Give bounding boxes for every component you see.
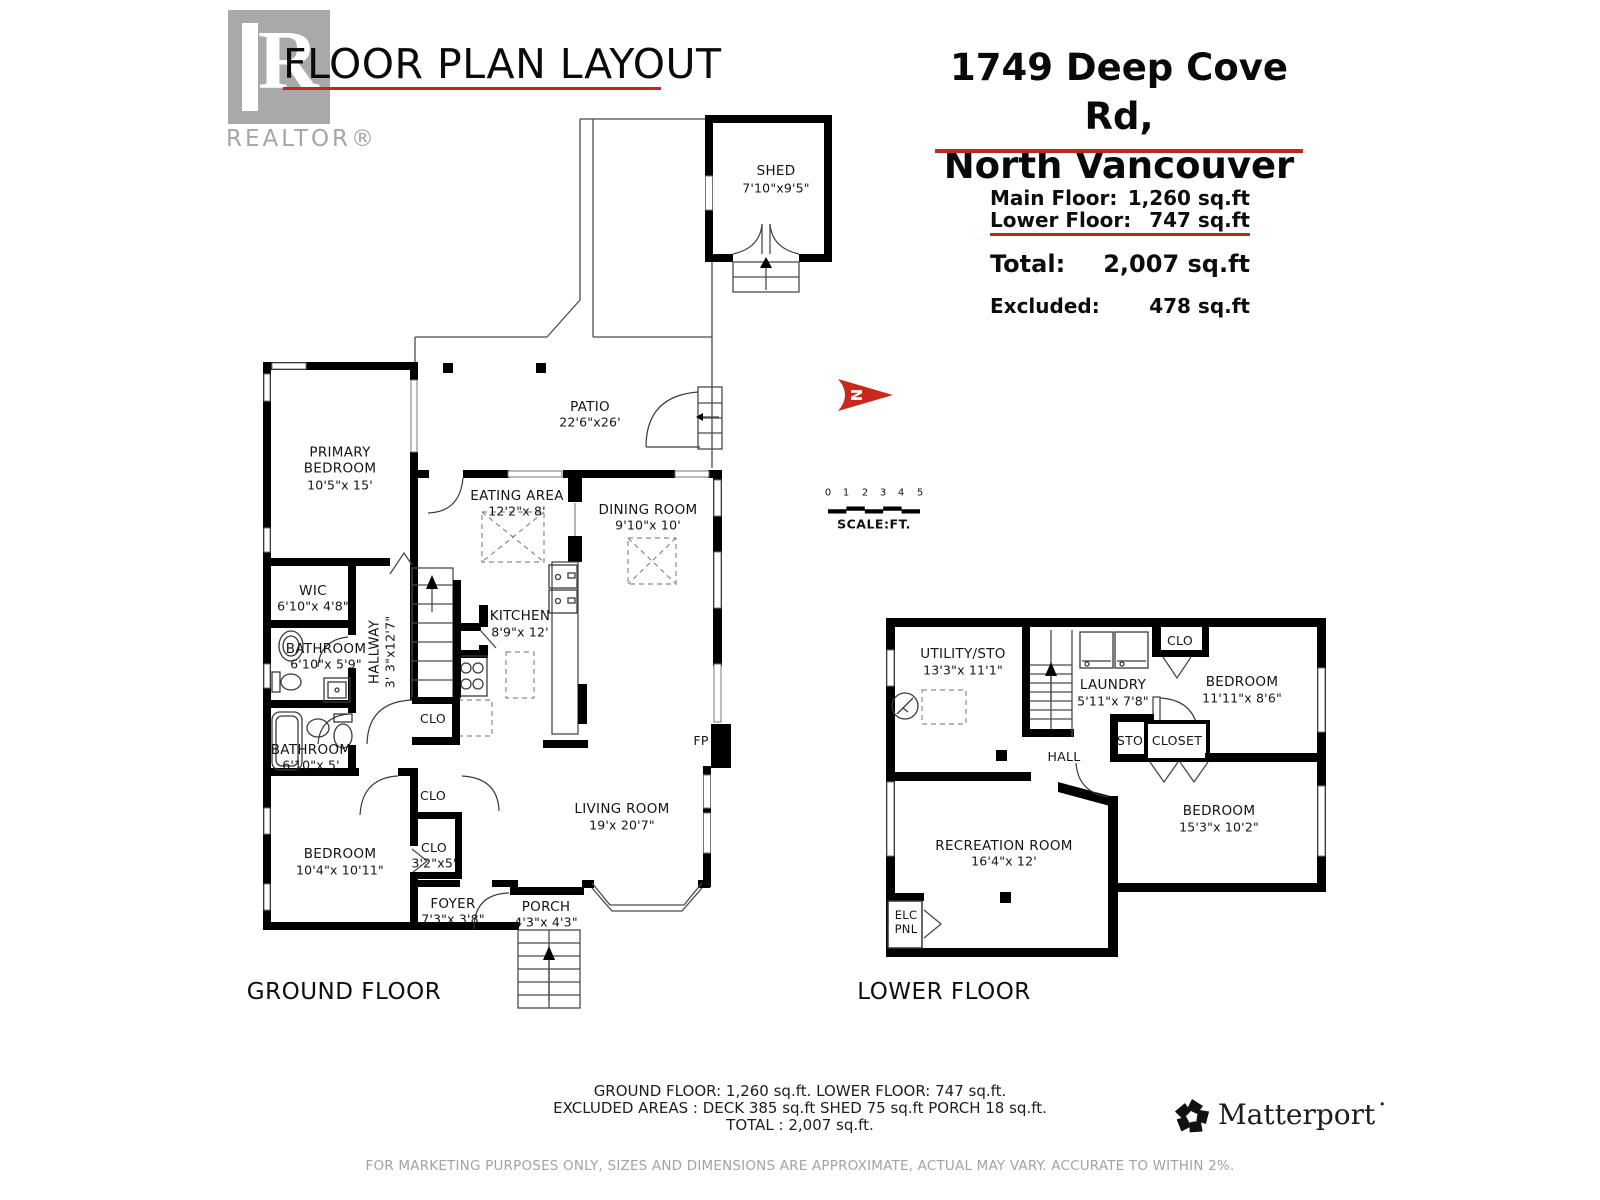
scale-tick-4: 4 [898, 488, 904, 499]
room-label-utility: UTILITY/STO [920, 647, 1005, 663]
address-line1: 1749 Deep Cove Rd, [935, 44, 1303, 142]
stat-total: Total: 2,007 sq.ft [990, 250, 1250, 278]
realtor-logo-bar [242, 23, 258, 111]
matterport-logo-text: Matterport˙ [1218, 1098, 1389, 1131]
room-dims-primary-bedroom: 10'5"x 15' [307, 478, 373, 493]
room-label-living-room: LIVING ROOM [574, 802, 669, 818]
north-arrow-icon: N [838, 379, 893, 411]
room-dims-living-room: 19'x 20'7" [589, 818, 655, 833]
room-label-fireplace: FP [693, 734, 708, 748]
room-dims-foyer: 7'3"x 3'8" [421, 912, 485, 927]
room-dims-bedroom2-lower: 15'3"x 10'2" [1179, 820, 1259, 835]
room-label-dining-room: DINING ROOM [599, 503, 698, 519]
room-label-recreation: RECREATION ROOM [935, 839, 1072, 855]
page-title: FLOOR PLAN LAYOUT [283, 40, 722, 88]
svg-text:N: N [847, 389, 865, 402]
room-label-foyer: FOYER [430, 897, 475, 913]
address-underline [935, 149, 1303, 153]
stat-excluded: Excluded: 478 sq.ft [990, 294, 1250, 318]
room-label-primary-bedroom: PRIMARY BEDROOM [280, 445, 400, 476]
room-dims-wic: 6'10"x 4'8" [277, 599, 349, 614]
room-label-closet: CLOSET [1152, 734, 1202, 748]
title-underline [283, 87, 661, 90]
realtor-logo-text: REALTOR® [226, 126, 377, 152]
stats-divider [990, 233, 1250, 236]
stat-main-floor-label: Main Floor: [990, 186, 1117, 210]
lower-floor-title: LOWER FLOOR [857, 979, 1031, 1005]
room-dims-bedroom: 10'4"x 10'11" [296, 863, 384, 878]
property-address: 1749 Deep Cove Rd, North Vancouver [935, 44, 1303, 190]
room-label-clo1: CLO [420, 789, 446, 803]
scale-tick-1: 1 [843, 488, 849, 499]
room-label-bedroom1-lower: BEDROOM [1206, 675, 1279, 691]
stat-total-label: Total: [990, 250, 1065, 278]
room-dims-shed: 7'10"x9'5" [742, 181, 810, 196]
room-dims-porch: 4'3"x 4'3" [514, 915, 578, 930]
stat-lower-floor: Lower Floor: 747 sq.ft [990, 208, 1250, 232]
room-label-clo2: CLO [421, 841, 447, 855]
stat-total-value: 2,007 sq.ft [1103, 250, 1250, 278]
scale-tick-2: 2 [862, 488, 868, 499]
room-dims-recreation: 16'4"x 12' [971, 854, 1037, 869]
room-label-sto: STO [1117, 734, 1143, 748]
room-label-clo-hall: CLO [420, 712, 446, 726]
room-dims-bathroom2: 6'10"x 5' [282, 758, 340, 773]
room-dims-laundry: 5'11"x 7'8" [1077, 694, 1149, 709]
stat-lower-floor-value: 747 sq.ft [1149, 208, 1250, 232]
stat-main-floor-value: 1,260 sq.ft [1128, 186, 1250, 210]
room-label-eating-area: EATING AREA [470, 489, 563, 505]
room-dims-kitchen: 8'9"x 12' [491, 625, 549, 640]
scale-label: SCALE:FT. [837, 517, 911, 532]
footer-disclaimer: FOR MARKETING PURPOSES ONLY, SIZES AND D… [0, 1158, 1600, 1174]
room-label-bathroom1: BATHROOM [286, 642, 367, 658]
floorplan-page: N R REALTOR® FLOOR PLAN LAYOUT [0, 0, 1600, 1200]
stat-excluded-label: Excluded: [990, 294, 1100, 318]
stat-main-floor: Main Floor: 1,260 sq.ft [990, 186, 1250, 210]
scale-tick-5: 5 [917, 488, 923, 499]
room-label-bedroom2-lower: BEDROOM [1183, 804, 1256, 820]
room-dims-eating-area: 12'2"x 8' [488, 504, 546, 519]
room-dims-utility: 13'3"x 11'1" [923, 663, 1003, 678]
room-label-hallway: HALLWAY 3' 3"x12'7" [367, 616, 398, 689]
room-label-kitchen: KITCHEN [490, 609, 551, 625]
room-dims-bathroom1: 6'10"x 5'9" [290, 657, 362, 672]
room-dims-bedroom1-lower: 11'11"x 8'6" [1202, 691, 1282, 706]
stat-lower-floor-label: Lower Floor: [990, 208, 1131, 232]
room-label-laundry: LAUNDRY [1080, 678, 1146, 694]
room-label-wic: WIC [299, 584, 327, 600]
room-label-patio: PATIO [570, 400, 610, 416]
scale-tick-3: 3 [880, 488, 886, 499]
scale-tick-0: 0 [825, 488, 831, 499]
shed-plan [705, 115, 832, 292]
room-label-porch: PORCH [522, 900, 571, 916]
room-label-clo-lower: CLO [1167, 634, 1193, 648]
stat-excluded-value: 478 sq.ft [1149, 294, 1250, 318]
room-dims-dining-room: 9'10"x 10' [615, 518, 681, 533]
room-dims-clo2: 3'2"x5' [411, 856, 456, 871]
room-label-bathroom2: BATHROOM [271, 743, 352, 759]
room-dims-patio: 22'6"x26' [559, 415, 621, 430]
room-label-elc-pnl: ELC PNL [886, 909, 926, 937]
room-label-hall: HALL [1047, 750, 1080, 764]
scale-bar [828, 507, 920, 514]
room-label-shed: SHED [757, 164, 796, 180]
ground-floor-title: GROUND FLOOR [247, 979, 441, 1005]
room-label-bedroom: BEDROOM [304, 847, 377, 863]
